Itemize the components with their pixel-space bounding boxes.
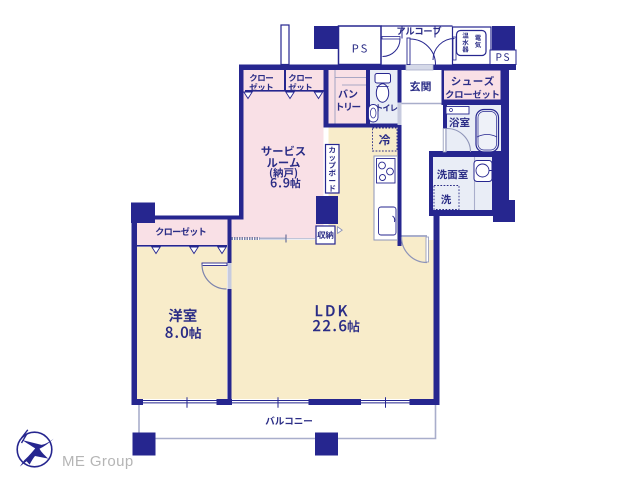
svg-text:ME Group: ME Group xyxy=(62,453,134,470)
